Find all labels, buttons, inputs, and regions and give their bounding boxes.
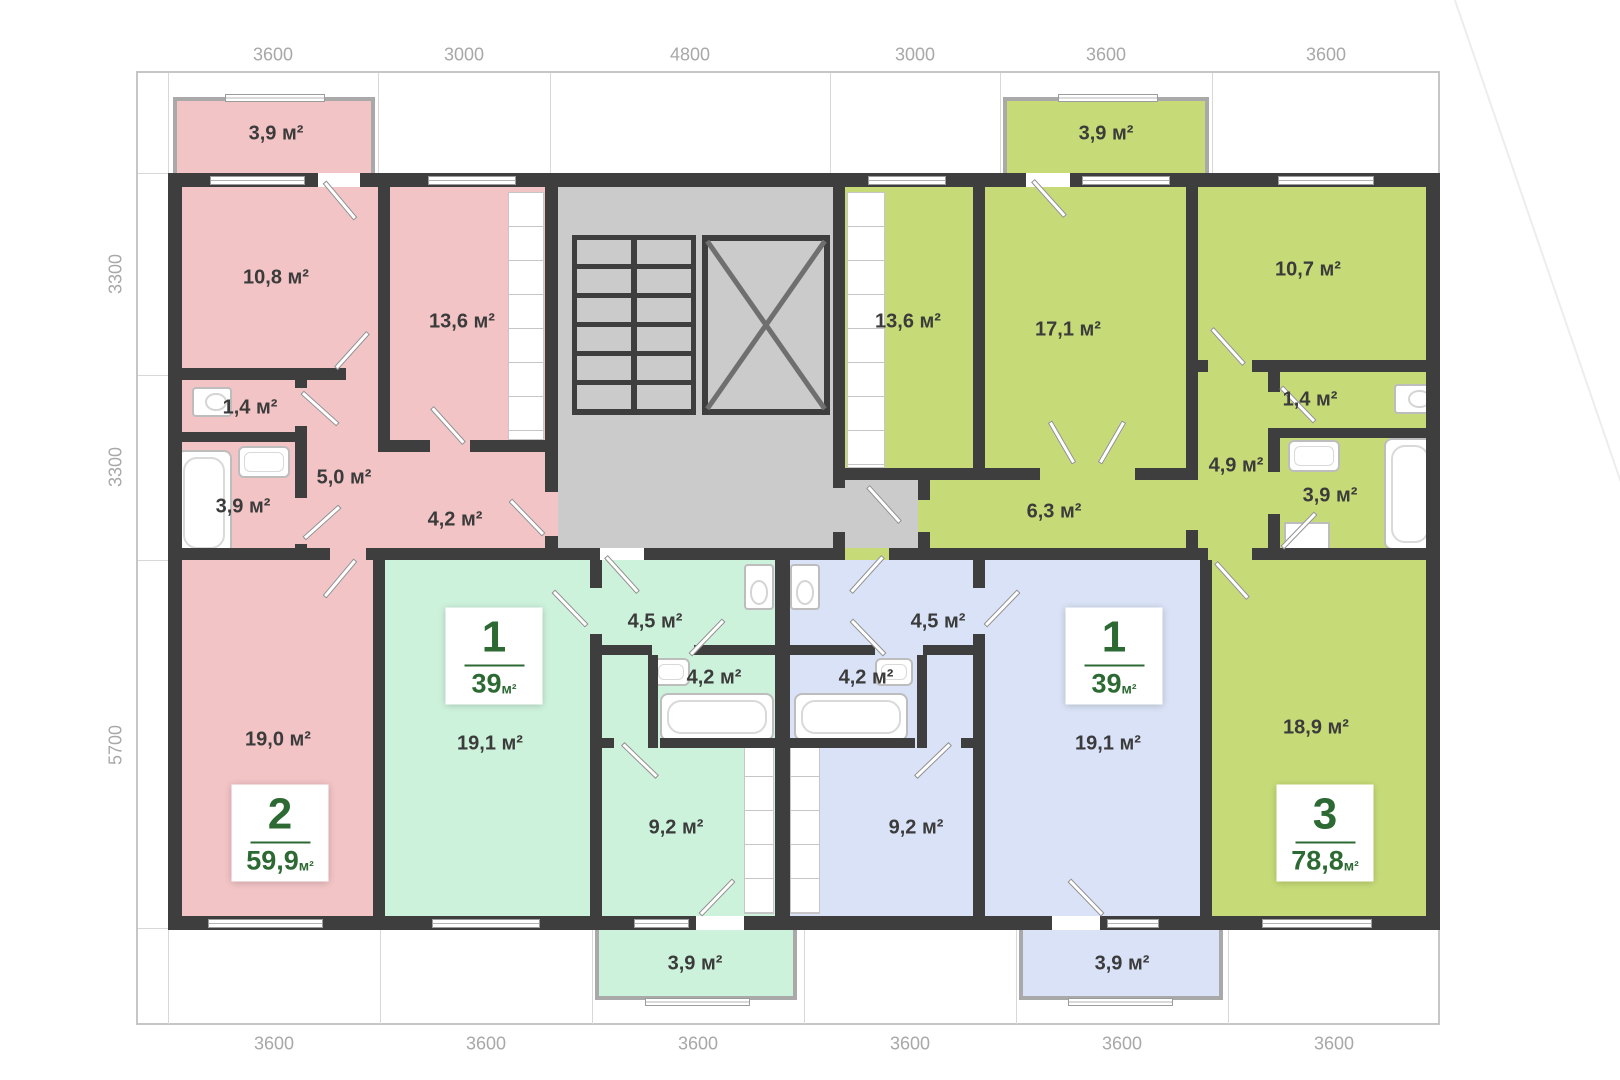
wall [923,645,973,655]
dimension-label: 3600 [1306,45,1346,66]
grid-tick [550,73,551,173]
room-area-label: 1,4 м² [1283,389,1338,412]
room-area-label: 13,6 м² [429,311,495,334]
badge-divider [1295,841,1355,843]
dimension-label: 3300 [106,254,127,294]
wall [918,480,930,500]
window [634,919,689,928]
room-area-label: 4,5 м² [911,611,966,634]
room-area-label: 10,8 м² [243,267,309,290]
toilet-icon [790,564,820,610]
room-area-label: 4,5 м² [628,611,683,634]
wall [833,468,1040,480]
grid-tick [804,928,805,1024]
wall [833,480,845,488]
wall [889,548,1186,560]
wall [545,536,558,560]
dimension-label: 3600 [1102,1034,1142,1055]
kitchen-counter [790,742,820,914]
sink-icon [238,446,290,478]
wall [590,560,602,588]
badge-divider [464,664,524,666]
wall [1268,372,1280,392]
staircase [572,235,696,415]
window [208,919,323,928]
wall [366,548,385,560]
grid-tick [138,928,168,929]
decorative-diagonal [1447,0,1620,567]
dimension-label: 3600 [890,1034,930,1055]
wall [545,173,558,492]
area-value: 39 [471,670,501,697]
window [1278,176,1374,185]
apartment-total-area: 78,8м² [1291,847,1359,874]
room-area-label: 17,1 м² [1035,319,1101,342]
apartment-badge: 1 39м² [1066,608,1163,705]
room-area-label: 9,2 м² [889,817,944,840]
dimension-label: 3000 [895,45,935,66]
dimension-label: 3600 [253,45,293,66]
area-unit: м² [502,681,517,695]
wall [168,432,295,442]
sink-icon [1288,440,1340,472]
wall [602,738,614,748]
area-unit: м² [1122,681,1137,695]
kitchen-counter [508,192,544,440]
wall [1186,372,1198,480]
area-value: 39 [1091,670,1121,697]
door-opening [1052,916,1100,930]
room-area-label: 9,2 м² [649,817,704,840]
window [428,176,516,185]
wall [1268,438,1280,472]
dimension-label: 3300 [106,447,127,487]
area-unit: м² [299,858,314,872]
wall [602,645,652,655]
area-value: 78,8 [1291,847,1344,874]
wall [961,738,973,748]
room-area-label: 19,1 м² [457,733,523,756]
wall [660,738,775,748]
wall [385,548,545,560]
grid-tick [168,928,169,1024]
apartment-rooms-count: 3 [1313,792,1337,836]
entrance-hall-area [845,480,918,548]
grid-tick [138,560,168,561]
wall [973,560,985,588]
wall [1186,530,1198,560]
wall [644,548,845,560]
wall [1186,360,1208,372]
elevator-shaft [702,235,830,415]
apartment-total-area: 39м² [471,670,516,697]
window [1107,919,1159,928]
wall [1252,548,1440,560]
wall [1135,468,1186,480]
wall [973,173,985,480]
room-area-label: 1,4 м² [223,397,278,420]
dimension-label: 3600 [1086,45,1126,66]
wall [790,738,915,748]
apartment-badge: 3 78,8м² [1277,785,1374,882]
dimension-label: 3600 [466,1034,506,1055]
dimension-label: 3000 [444,45,484,66]
wall [295,426,307,498]
wall [1268,514,1280,560]
grid-tick [1000,73,1001,173]
window [868,176,946,185]
grid-tick [168,73,169,173]
room-area-label: 4,2 м² [687,667,742,690]
room-area-label: 3,9 м² [668,953,723,976]
room-area-label: 5,0 м² [317,467,372,490]
wall [917,655,927,748]
room-area-label: 10,7 м² [1275,259,1341,282]
entrance-hall-area [558,420,845,548]
room-area-label: 4,2 м² [839,667,894,690]
window [1068,998,1173,1006]
kitchen-counter [744,742,774,914]
room-area-label: 19,0 м² [245,729,311,752]
apartment-badge: 1 39м² [446,608,543,705]
grid-tick [592,928,593,1024]
dimension-label: 3600 [678,1034,718,1055]
apartment-total-area: 39м² [1091,670,1136,697]
room-area-label: 13,6 м² [875,311,941,334]
room-area-label: 18,9 м² [1283,717,1349,740]
wall [295,380,307,388]
area-value: 59,9 [246,847,299,874]
wall [1252,360,1440,372]
grid-tick [138,375,168,376]
grid-tick [1212,73,1213,173]
wall [590,634,602,930]
room-area-label: 3,9 м² [1303,485,1358,508]
area-unit: м² [1344,858,1359,872]
grid-line-bottom [137,1023,1440,1025]
room-area-label: 3,9 м² [1079,123,1134,146]
wall [378,173,390,452]
wall [378,440,430,452]
wall [918,532,930,548]
floor-plan: 3600 3000 4800 3000 3600 3600 3300 3300 … [0,0,1620,1080]
room-area-label: 6,3 м² [1027,501,1082,524]
wall [694,645,775,655]
door-opening [696,916,744,930]
window [225,94,325,102]
room-area-label: 19,1 м² [1075,733,1141,756]
wall [373,560,385,930]
room-area-label: 4,2 м² [428,509,483,532]
wall [790,645,875,655]
wall [1268,428,1440,438]
badge-divider [1084,664,1144,666]
room-area-label: 3,9 м² [216,496,271,519]
apartment-rooms-count: 1 [1102,615,1126,659]
wall [775,560,790,930]
window [210,176,305,185]
window [645,998,750,1006]
dimension-label: 4800 [670,45,710,66]
dimension-label: 3600 [1314,1034,1354,1055]
grid-line-top [137,71,1440,73]
wall [1200,560,1212,930]
badge-divider [250,841,310,843]
grid-tick [1016,928,1017,1024]
wall [833,173,845,468]
grid-tick [830,73,831,173]
bathtub-icon [660,693,774,741]
wall [973,634,985,930]
apartment-total-area: 59,9м² [246,847,314,874]
wall [833,532,845,548]
bathtub-icon [794,693,908,741]
window [1058,94,1158,102]
grid-tick [138,173,168,174]
room-area-label: 4,9 м² [1209,455,1264,478]
room-area-label: 3,9 м² [249,123,304,146]
toilet-icon [744,564,774,610]
window [432,919,540,928]
grid-tick [380,928,381,1024]
wall [558,548,600,560]
window [1262,919,1372,928]
room-area-label: 3,9 м² [1095,953,1150,976]
apartment-rooms-count: 1 [482,615,506,659]
grid-tick [378,73,379,173]
apartment-rooms-count: 2 [268,792,292,836]
dimension-label: 5700 [106,725,127,765]
dimension-label: 3600 [254,1034,294,1055]
wall [648,655,658,748]
apartment-badge: 2 59,9м² [232,785,329,882]
grid-tick [1228,928,1229,1024]
grid-line-left [136,71,138,1025]
wall [1186,173,1198,372]
window [1082,176,1170,185]
wall [168,916,1440,930]
wall [168,548,330,560]
wall [168,368,346,380]
